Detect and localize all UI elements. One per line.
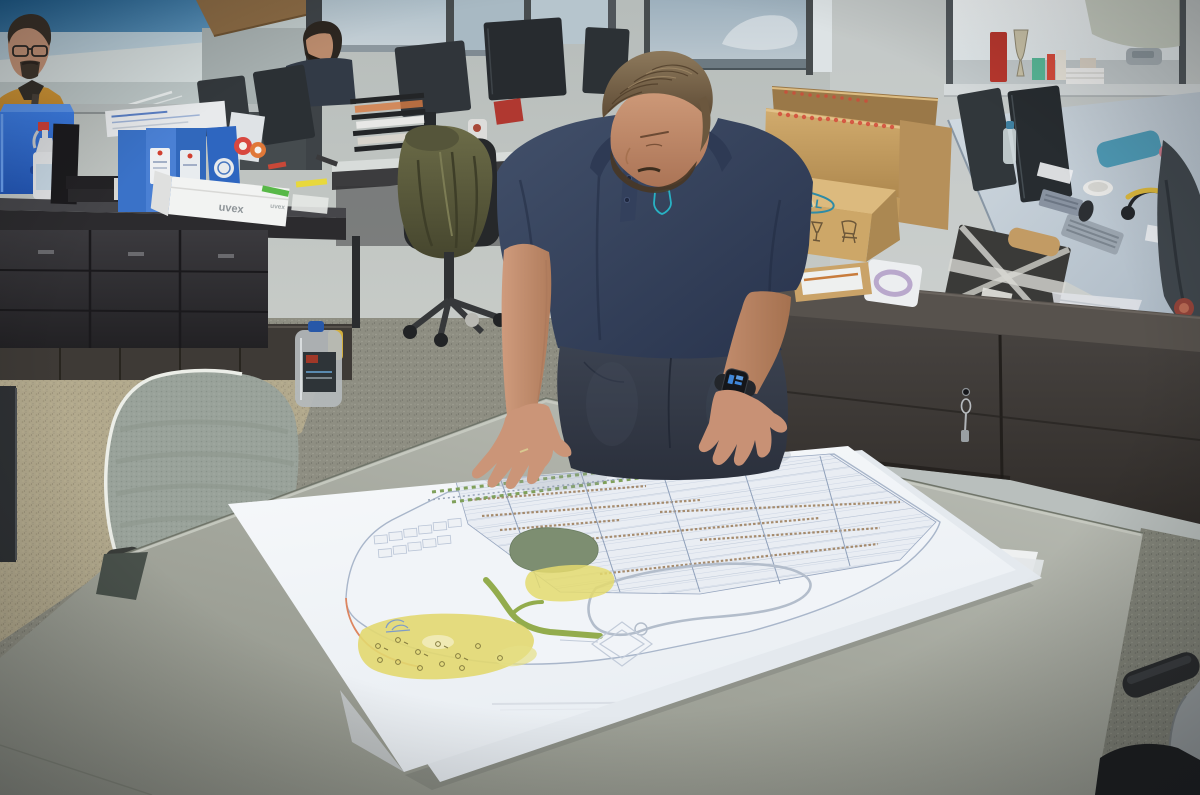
glass-bottle [1003, 128, 1016, 164]
office-photo-canvas: Z [0, 0, 1200, 795]
desk-pedestal [0, 230, 268, 348]
drawer-handle [128, 252, 144, 256]
jacket-hood [405, 125, 459, 151]
side-panel [0, 386, 16, 562]
blue-binder [118, 130, 146, 212]
button [624, 197, 629, 202]
red-box [494, 98, 524, 125]
red-binder [990, 32, 1007, 82]
book-stack [1066, 68, 1104, 84]
drawer-handle [218, 254, 234, 258]
monitor [483, 17, 566, 100]
jug-cap [308, 321, 324, 332]
side-box [898, 120, 952, 230]
spray-nozzle [38, 122, 49, 131]
office-photo: Z [0, 0, 1200, 795]
drawer-handle [38, 250, 54, 254]
tissue-box [863, 259, 922, 308]
water-jug [295, 321, 343, 407]
